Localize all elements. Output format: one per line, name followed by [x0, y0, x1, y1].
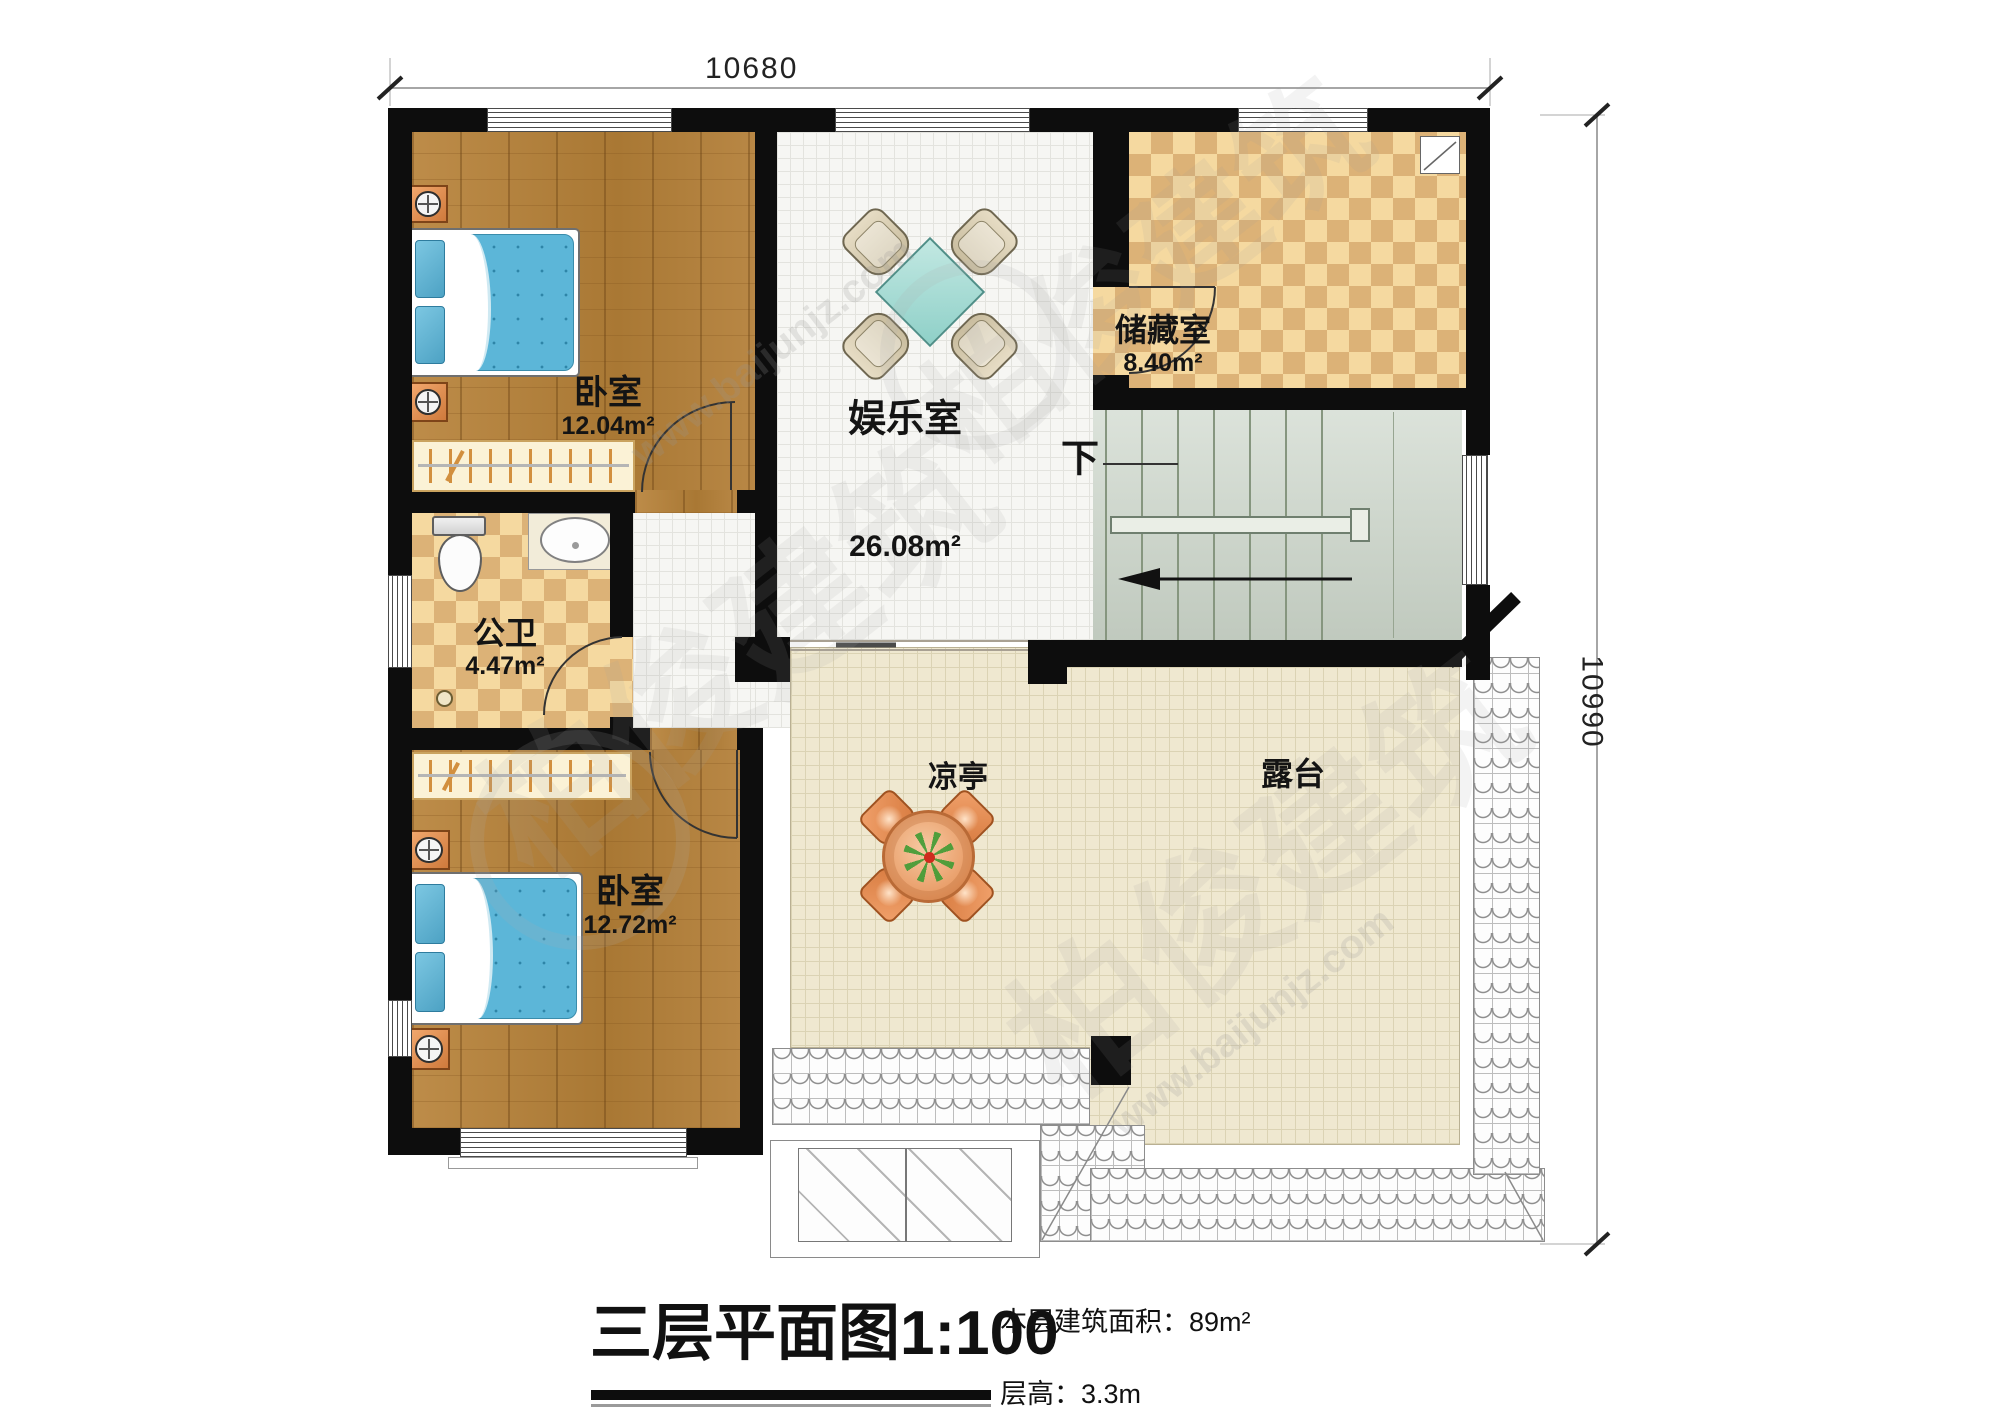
wall-segment — [687, 1128, 758, 1155]
floor-plan-canvas: 柏俊建筑 柏俊建筑 柏俊建筑 www.baijunjz.com www.baij… — [0, 0, 2000, 1413]
window-storage — [1238, 108, 1368, 132]
wall-segment — [1067, 640, 1462, 667]
wall-pier — [1028, 640, 1067, 684]
patio-round-table — [882, 810, 975, 903]
room-area: 12.04m² — [561, 412, 654, 440]
wall-segment — [1466, 585, 1490, 680]
wall-segment — [388, 1128, 467, 1155]
wall-segment — [388, 108, 412, 575]
bay-window-mullion — [905, 1148, 907, 1242]
wall-segment — [737, 728, 763, 750]
window-bathroom — [388, 575, 412, 668]
nightstand — [408, 1028, 450, 1070]
room-area: 4.47m² — [465, 652, 544, 680]
room-label-bathroom: 公卫 4.47m² — [465, 616, 544, 680]
room-area: 8.40m² — [1123, 349, 1202, 377]
title-underline-thin — [591, 1404, 991, 1407]
room-area: 26.08m² — [849, 530, 961, 564]
pillow — [415, 952, 445, 1012]
window-bedroom-top — [487, 108, 672, 132]
dimension-top-value: 10680 — [705, 52, 798, 86]
title-underline — [591, 1390, 991, 1400]
wall-segment — [412, 492, 635, 513]
pillow — [415, 884, 445, 944]
toilet-tank — [432, 516, 486, 536]
floor-area-note: 本层建筑面积：89m² — [1000, 1300, 1251, 1339]
nightstand — [408, 185, 448, 223]
room-name: 卧室 — [596, 873, 664, 911]
wardrobe-rod — [418, 774, 625, 777]
wall-segment — [737, 490, 777, 513]
floor-bathroom-doorway — [610, 637, 633, 717]
roof-strip-right — [1473, 657, 1540, 1175]
floor-drain — [436, 690, 453, 707]
wall-segment — [1093, 388, 1470, 410]
dimension-tick — [1585, 104, 1609, 126]
title-text: 三层平面图 — [590, 1299, 900, 1368]
room-label-entertainment: 娱乐室 — [848, 399, 962, 442]
wall-pier — [735, 637, 790, 682]
floor-doorway-bedroom-top — [635, 490, 737, 513]
clock-dial-icon — [415, 191, 442, 216]
wall-segment — [388, 728, 650, 750]
bed-bedroom-top — [407, 228, 580, 377]
roof-strip-bottom-left — [772, 1048, 1090, 1125]
sink-basin — [540, 517, 610, 563]
window-entertainment — [835, 108, 1030, 132]
wall-segment — [755, 132, 777, 637]
pillow — [415, 240, 445, 298]
room-name: 娱乐室 — [848, 399, 962, 442]
dimension-tick — [1478, 77, 1502, 99]
wall-segment — [1093, 132, 1129, 287]
wall-pier — [1091, 1036, 1131, 1085]
room-label-bedroom-bottom: 卧室 12.72m² — [583, 873, 676, 939]
wall-segment — [1030, 108, 1238, 132]
room-label-pavilion: 凉亭 — [928, 761, 988, 795]
drawing-title: 三层平面图1:100 — [590, 1282, 1059, 1372]
room-area-entertainment: 26.08m² — [849, 530, 961, 564]
wall-segment — [610, 513, 633, 637]
clock-dial-icon — [415, 837, 443, 864]
stairs-down-label: 下 — [1061, 439, 1099, 482]
room-name: 卧室 — [574, 374, 642, 412]
room-label-storage: 储藏室 8.40m² — [1115, 313, 1211, 377]
flower-icon — [924, 852, 935, 863]
floor-passage — [755, 682, 790, 728]
window-sill-bottom — [448, 1157, 698, 1169]
pillow — [415, 306, 445, 364]
room-area: 12.72m² — [583, 911, 676, 939]
stair-handrail-cap — [1350, 508, 1370, 542]
room-name: 储藏室 — [1115, 313, 1211, 349]
corner-vent-window — [1420, 136, 1460, 174]
wall-segment — [388, 668, 412, 1000]
stair-landing-line — [1393, 412, 1394, 638]
bed-bedroom-bottom — [407, 872, 583, 1025]
wall-segment — [672, 108, 835, 132]
window-bedroom-bottom-left — [388, 1000, 412, 1057]
room-name: 露台 — [1261, 757, 1325, 793]
wardrobe-bedroom-bottom — [412, 752, 632, 800]
window-bedroom-bottom — [460, 1128, 687, 1157]
dimension-right-value: 10990 — [1575, 655, 1609, 748]
room-name: 公卫 — [473, 616, 537, 652]
wall-segment — [740, 750, 763, 1155]
floor-hallway — [633, 513, 755, 728]
down-text: 下 — [1061, 439, 1099, 482]
clock-dial-icon — [415, 389, 442, 416]
wardrobe-rod — [418, 464, 628, 467]
room-label-terrace: 露台 — [1261, 757, 1325, 793]
dimension-tick — [1585, 1233, 1609, 1255]
roof-strip-bottom-right — [1090, 1168, 1545, 1242]
clock-dial-icon — [415, 1035, 443, 1063]
room-label-bedroom-top: 卧室 12.04m² — [561, 374, 654, 440]
stair-handrail — [1110, 516, 1358, 534]
dimension-tick — [378, 77, 402, 99]
wardrobe-bedroom-top — [412, 440, 635, 492]
nightstand — [408, 382, 448, 422]
floor-entertainment-room — [777, 132, 1093, 640]
nightstand — [408, 830, 450, 870]
floor-doorway-bedroom-bottom — [650, 728, 737, 750]
window-staircase — [1462, 455, 1488, 585]
floor-height-note: 层高：3.3m — [1000, 1372, 1141, 1411]
room-name: 凉亭 — [928, 761, 988, 795]
